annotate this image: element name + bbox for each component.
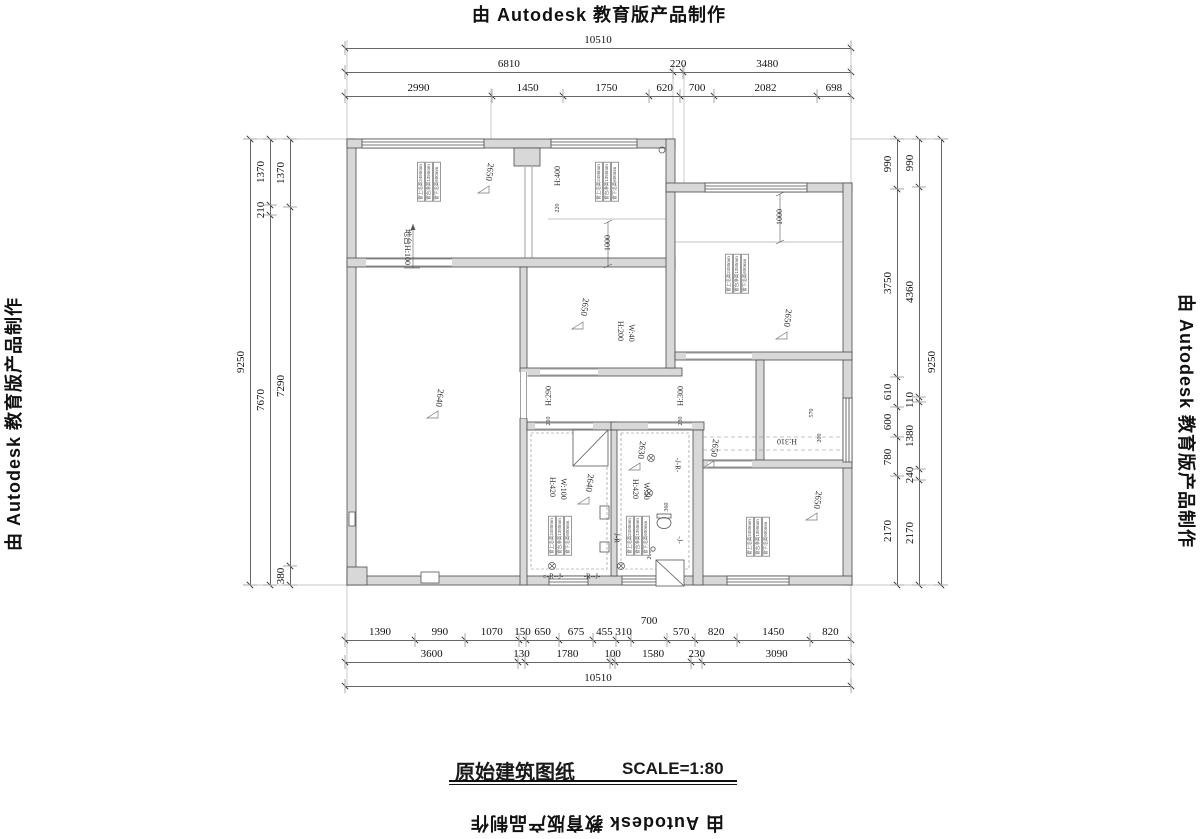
window-annotation-line: 窗台净高1350mm [754,517,762,557]
window-annotation-line: 窗台净高1350mm [603,162,611,202]
window-annotation-line: 窗上沿高2450mm [746,517,754,557]
plan-note: H:300 [677,386,685,406]
dim-label: 1380 [904,425,916,447]
dim-extension [649,89,650,103]
dim-label: 820 [822,626,839,638]
dim-label: 675 [568,626,585,638]
dim-extension [890,376,904,377]
dim-label: 2082 [754,82,776,94]
dim-chain-line [250,139,251,585]
plan-note: 230 [678,417,684,426]
dim-extension [243,139,257,140]
dim-label: 1370 [275,162,287,184]
dim-label: 230 [688,648,705,660]
dim-label: 2170 [904,522,916,544]
dim-label: 990 [432,626,449,638]
dim-label: 100 [604,648,621,660]
walls [347,139,852,585]
dim-label: 700 [689,82,706,94]
dim-extension [851,41,852,55]
plan-note: -J-R- [674,458,681,472]
window-annotation: 窗上沿高2450mm窗台净高1350mm窗下沿高600mm [417,162,441,202]
dim-label: 310 [615,626,632,638]
dim-chain-line [345,640,851,641]
dim-chain-line [345,662,851,663]
dim-label: 7290 [275,375,287,397]
dim-label: 380 [275,567,287,584]
plan-note: H:420 [548,477,556,497]
dim-extension [934,139,948,140]
dim-label: 240 [904,466,916,483]
dim-extension [263,585,277,586]
dim-label: 3480 [756,58,778,70]
dim-label: 220 [670,58,687,70]
dim-extension [890,437,904,438]
dim-extension [283,139,297,140]
dim-extension [890,476,904,477]
dim-extension [890,139,904,140]
window-annotation-line: 窗台净高1350mm [733,254,741,294]
dim-extension [345,655,346,669]
window-annotation: 窗上沿高2450mm窗台净高1350mm窗下沿高600mm [725,254,749,294]
dim-extension [558,633,559,647]
dim-label: 9250 [235,351,247,373]
window-annotation-line: 窗上沿高2450mm [595,162,603,202]
plan-note: 210 [546,417,552,426]
dim-label: 3090 [766,648,788,660]
dim-extension [912,139,926,140]
window-annotation-line: 窗上沿高2450mm [417,162,425,202]
dim-extension [345,633,346,647]
dim-label: 10510 [584,672,612,684]
dim-label: 9250 [926,351,938,373]
dim-extension [912,186,926,187]
dim-chain-line [345,48,851,49]
dim-extension [283,206,297,207]
dim-extension [714,89,715,103]
window-annotation-line: 窗上沿高2450mm [725,254,733,294]
dim-label: 1450 [762,626,784,638]
dim-label: 1750 [595,82,617,94]
dim-chain-line [345,686,851,687]
dim-chain-line [897,139,898,585]
wall-box [421,572,439,583]
dim-extension [345,89,346,103]
dim-label: 1450 [517,82,539,94]
dim-extension [851,633,852,647]
dim-extension [851,89,852,103]
dim-label: 698 [826,82,843,94]
dim-label: 620 [656,82,673,94]
window-annotation-line: 窗下沿高600mm [741,254,749,294]
window-annotation-line: 窗下沿高600mm [564,516,572,556]
dim-label: 3600 [421,648,443,660]
dim-extension [345,41,346,55]
dim-extension [679,89,680,103]
dim-label: 570 [673,626,690,638]
dim-extension [592,633,593,647]
plan-note: J-R [613,533,620,543]
dim-label: 600 [882,414,894,431]
plan-note: W:50 [642,482,650,499]
dim-extension [345,679,346,693]
dim-label: 110 [904,392,916,408]
dim-label: 1370 [255,161,267,183]
dim-extension [563,89,564,103]
dim-extension [492,89,493,103]
window-annotation: 窗上沿高2450mm窗台净高1350mm窗下沿高600mm [548,516,572,556]
dim-label: 455 [596,626,613,638]
dim-extension [263,139,277,140]
drawing-canvas: 由 Autodesk 教育版产品制作 由 Autodesk 教育版产品制作 由 … [0,0,1200,839]
plan-note: 200 [817,434,823,443]
dim-label: 990 [882,156,894,173]
plan-note: -R--J- [584,574,601,581]
plan-note: 1000 [776,209,784,225]
window-annotation-line: 窗台净高1350mm [556,516,564,556]
dim-chain-line [345,96,851,97]
window-annotation-line: 窗台净高1350mm [634,516,642,556]
plan-note: W:100 [559,478,567,499]
plan-note: 地台H:100 [403,229,411,265]
window-annotation: 窗上沿高2450mm窗台净高1350mm窗下沿高600mm [626,516,650,556]
plan-note: H:200 [616,321,624,341]
dim-label: 780 [882,448,894,465]
plan-note: H:290 [545,386,553,406]
dim-extension [890,585,904,586]
dim-label: 1070 [481,626,503,638]
dim-chain-line [345,72,851,73]
dim-extension [345,65,346,79]
reference-lines [404,192,843,569]
plan-note: 570 [809,409,815,418]
dim-label: 610 [882,384,894,401]
dim-extension [414,633,415,647]
dim-extension [736,633,737,647]
plan-note: -J- [676,536,683,543]
window-annotation-line: 窗下沿高600mm [642,516,650,556]
plan-note: W:40 [627,324,635,341]
dim-label: 700 [641,615,658,627]
plan-note: H:400 [554,166,562,186]
dim-label: 210 [255,202,267,219]
window-annotation-line: 窗上沿高2450mm [548,516,556,556]
dim-label: 7670 [255,389,267,411]
toilet [657,518,671,529]
window-annotation-line: 窗下沿高600mm [762,517,770,557]
dim-extension [464,633,465,647]
dim-label: 6810 [498,58,520,70]
dim-extension [890,188,904,189]
dim-extension [816,89,817,103]
dim-extension [243,585,257,586]
plan-note: H:420 [631,479,639,499]
floor-plan-geometry [0,0,1200,839]
plan-note: 1000 [604,235,612,251]
dim-label: 1390 [369,626,391,638]
dim-extension [283,585,297,586]
dim-extension [851,655,852,669]
dim-extension [851,679,852,693]
dim-label: 150 [514,626,531,638]
plan-note: 360 [664,503,670,512]
dim-extension [809,633,810,647]
dim-label: 650 [534,626,551,638]
window-annotation-line: 窗下沿高600mm [611,162,619,202]
dim-extension [890,407,904,408]
dim-label: 990 [904,155,916,172]
dim-label: 820 [708,626,725,638]
window-annotation-line: 窗台净高1350mm [425,162,433,202]
dim-chain-line [919,139,920,585]
window-annotation: 窗上沿高2450mm窗台净高1350mm窗下沿高600mm [595,162,619,202]
window-annotation: 窗上沿高2450mm窗台净高1350mm窗下沿高600mm [746,517,770,557]
dim-label: 130 [513,648,530,660]
dim-label: 2990 [408,82,430,94]
dim-chain-line [941,139,942,585]
plan-note: H:310 [777,437,797,445]
window-annotation-line: 窗上沿高2450mm [626,516,634,556]
dim-extension [851,65,852,79]
dim-label: 1580 [642,648,664,660]
dim-extension [934,585,948,586]
dim-label: 4360 [904,281,916,303]
dim-label: 3750 [882,272,894,294]
plan-note: ○-R--J- [543,574,564,581]
dim-label: 10510 [584,34,612,46]
dim-label: 1780 [556,648,578,660]
dim-extension [912,585,926,586]
dim-extension [695,633,696,647]
window-annotation-line: 窗下沿高600mm [433,162,441,202]
dim-extension [666,633,667,647]
plan-note: 220 [555,204,561,213]
dim-label: 2170 [882,520,894,542]
